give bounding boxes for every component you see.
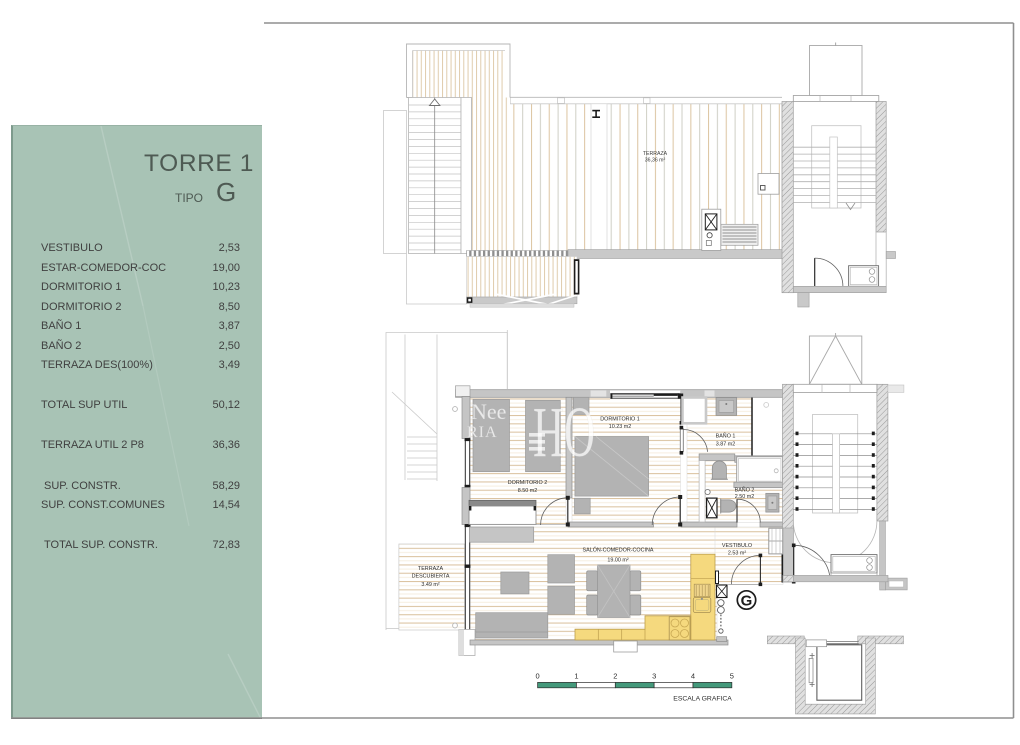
svg-text:DORMITORIO 1: DORMITORIO 1 bbox=[600, 417, 639, 423]
svg-text:Nee: Nee bbox=[471, 399, 506, 424]
svg-text:36,36 m²: 36,36 m² bbox=[645, 158, 666, 164]
svg-text:SALÓN-COMEDOR-COCINA: SALÓN-COMEDOR-COCINA bbox=[583, 547, 654, 554]
svg-text:DORMITORIO 2: DORMITORIO 2 bbox=[508, 480, 547, 486]
svg-text:ESCALA GRAFICA: ESCALA GRAFICA bbox=[673, 696, 732, 703]
svg-text:5: 5 bbox=[730, 672, 734, 681]
svg-text:2: 2 bbox=[613, 672, 617, 681]
svg-text:TERRAZA: TERRAZA bbox=[643, 151, 668, 157]
svg-text:10.23 m2: 10.23 m2 bbox=[609, 424, 631, 430]
svg-text:G: G bbox=[741, 593, 753, 610]
svg-text:3: 3 bbox=[652, 672, 656, 681]
svg-text:3.87 m2: 3.87 m2 bbox=[716, 442, 735, 448]
svg-text:19.00 m²: 19.00 m² bbox=[607, 558, 628, 564]
svg-text:2.50 m2: 2.50 m2 bbox=[735, 494, 754, 500]
svg-text:BAÑO 1: BAÑO 1 bbox=[716, 433, 736, 440]
svg-text:HO: HO bbox=[533, 392, 595, 472]
svg-text:TERRAZA: TERRAZA bbox=[418, 566, 444, 572]
svg-text:3.49 m²: 3.49 m² bbox=[421, 582, 439, 588]
svg-text:RIA: RIA bbox=[467, 424, 498, 441]
svg-text:BAÑO 2: BAÑO 2 bbox=[735, 487, 755, 494]
svg-text:2.53 m²: 2.53 m² bbox=[728, 551, 746, 557]
svg-text:DESCUBIERTA: DESCUBIERTA bbox=[412, 574, 450, 580]
svg-text:0: 0 bbox=[536, 672, 540, 681]
svg-text:1: 1 bbox=[574, 672, 578, 681]
svg-text:4: 4 bbox=[691, 672, 695, 681]
svg-text:VESTIBULO: VESTIBULO bbox=[722, 543, 752, 549]
svg-text:8.50 m2: 8.50 m2 bbox=[518, 488, 537, 494]
